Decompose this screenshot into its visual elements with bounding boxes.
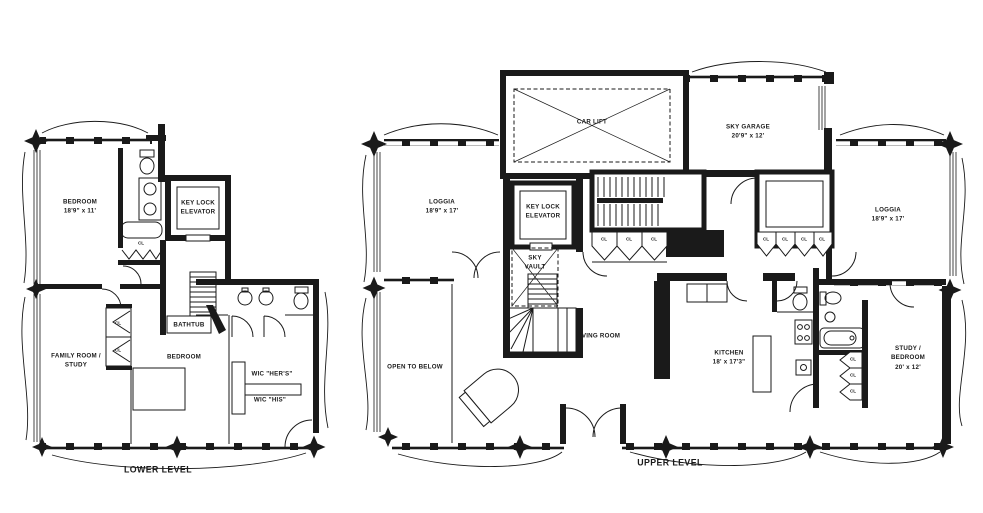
room-label-sky-garage: SKY GARAGE 20'9" x 12' <box>726 123 770 142</box>
closet-label: CL <box>601 237 607 244</box>
lower-bold-walls <box>38 124 319 433</box>
closet-label: CL <box>782 237 788 244</box>
core-stairs <box>506 274 576 352</box>
lower-level-plan <box>22 121 328 468</box>
closet-label: CL <box>850 389 856 396</box>
room-label-bedroom-1: BEDROOM 18'9" x 11' <box>63 198 97 217</box>
grand-piano <box>458 361 527 429</box>
closet-label: CL <box>115 321 121 328</box>
room-label-upper-elevator: KEY LOCK ELEVATOR <box>526 203 561 222</box>
room-label-family-room: FAMILY ROOM / STUDY <box>51 352 101 371</box>
lower-bath2-fixtures <box>238 287 308 309</box>
closet-label: CL <box>850 373 856 380</box>
room-label-loggia-left: LOGGIA 18'9" x 17' <box>426 198 459 217</box>
closet-label: CL <box>850 357 856 364</box>
room-label-wic-hers: WIC "HER'S" <box>251 369 292 378</box>
closet-label: CL <box>138 241 144 248</box>
room-label-sky-vault: SKY VAULT <box>525 254 546 273</box>
upper-level-plan <box>361 62 966 467</box>
floorplan-drawing <box>0 0 983 513</box>
room-label-kitchen: KITCHEN 18' x 17'3" <box>713 349 746 368</box>
upper-level-title: UPPER LEVEL <box>637 456 703 469</box>
room-label-living-room: LIVING ROOM <box>576 331 620 340</box>
closet-label: CL <box>801 237 807 244</box>
room-label-lower-elevator: KEY LOCK ELEVATOR <box>181 199 216 218</box>
floorplan-sheet: BEDROOM 18'9" x 11' KEY LOCK ELEVATOR CL… <box>0 0 983 513</box>
main-stairs <box>592 172 704 230</box>
room-label-bedroom-2: BEDROOM <box>167 352 201 361</box>
room-label-bathtub: BATHTUB <box>173 320 204 329</box>
room-label-car-lift: CAR LIFT <box>577 117 607 126</box>
room-label-study-bedroom: STUDY / BEDROOM 20' x 12' <box>891 344 925 372</box>
lower-closets <box>106 308 131 366</box>
closet-label: CL <box>763 237 769 244</box>
room-label-wic-his: WIC "HIS" <box>254 395 286 404</box>
room-label-open-to-below: OPEN TO BELOW <box>387 362 443 371</box>
lower-decor-waves <box>22 121 328 468</box>
lower-level-title: LOWER LEVEL <box>124 463 192 476</box>
lower-door-arcs <box>102 266 313 447</box>
closet-label: CL <box>819 237 825 244</box>
closet-label: CL <box>115 348 121 355</box>
closet-label: CL <box>626 237 632 244</box>
closet-label: CL <box>651 237 657 244</box>
room-label-loggia-right: LOGGIA 18'9" x 17' <box>872 206 905 225</box>
